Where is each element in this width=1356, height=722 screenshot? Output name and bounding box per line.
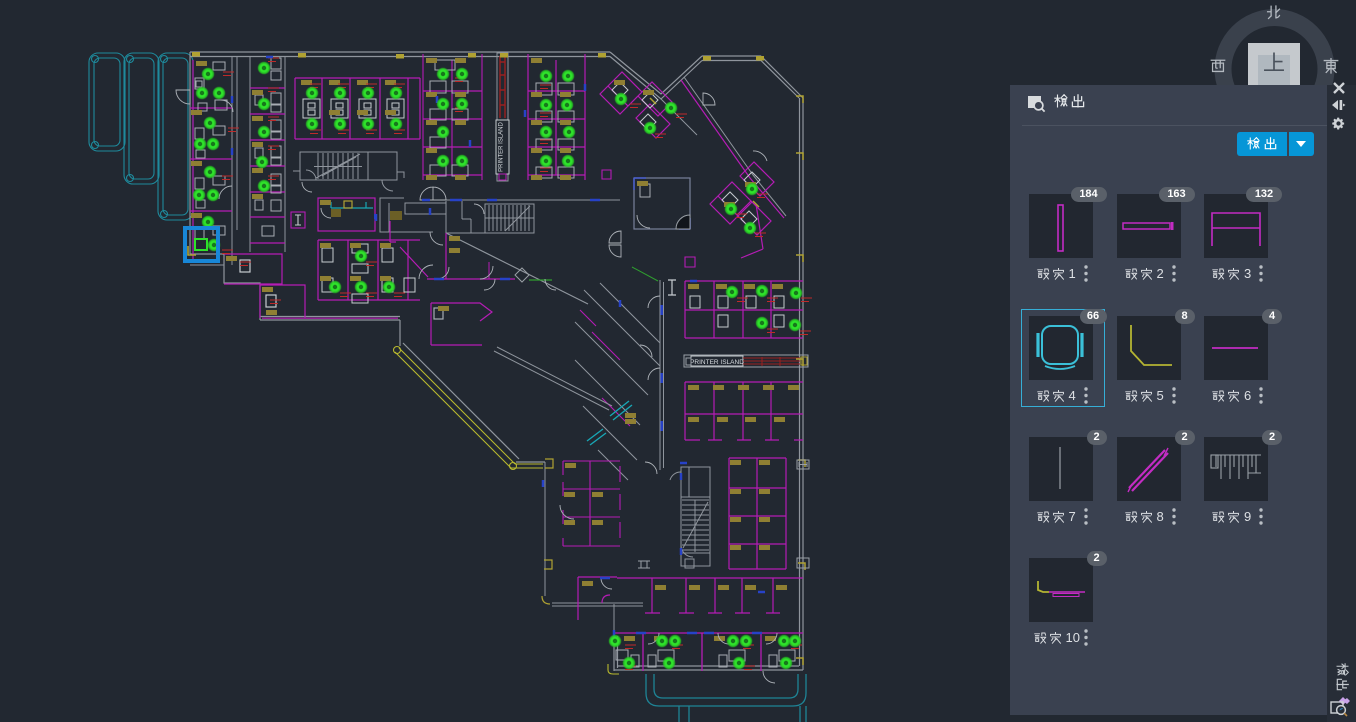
- svg-text:PRINTER ISLAND: PRINTER ISLAND: [690, 359, 744, 366]
- svg-text:PRINTER ISLAND: PRINTER ISLAND: [499, 122, 505, 172]
